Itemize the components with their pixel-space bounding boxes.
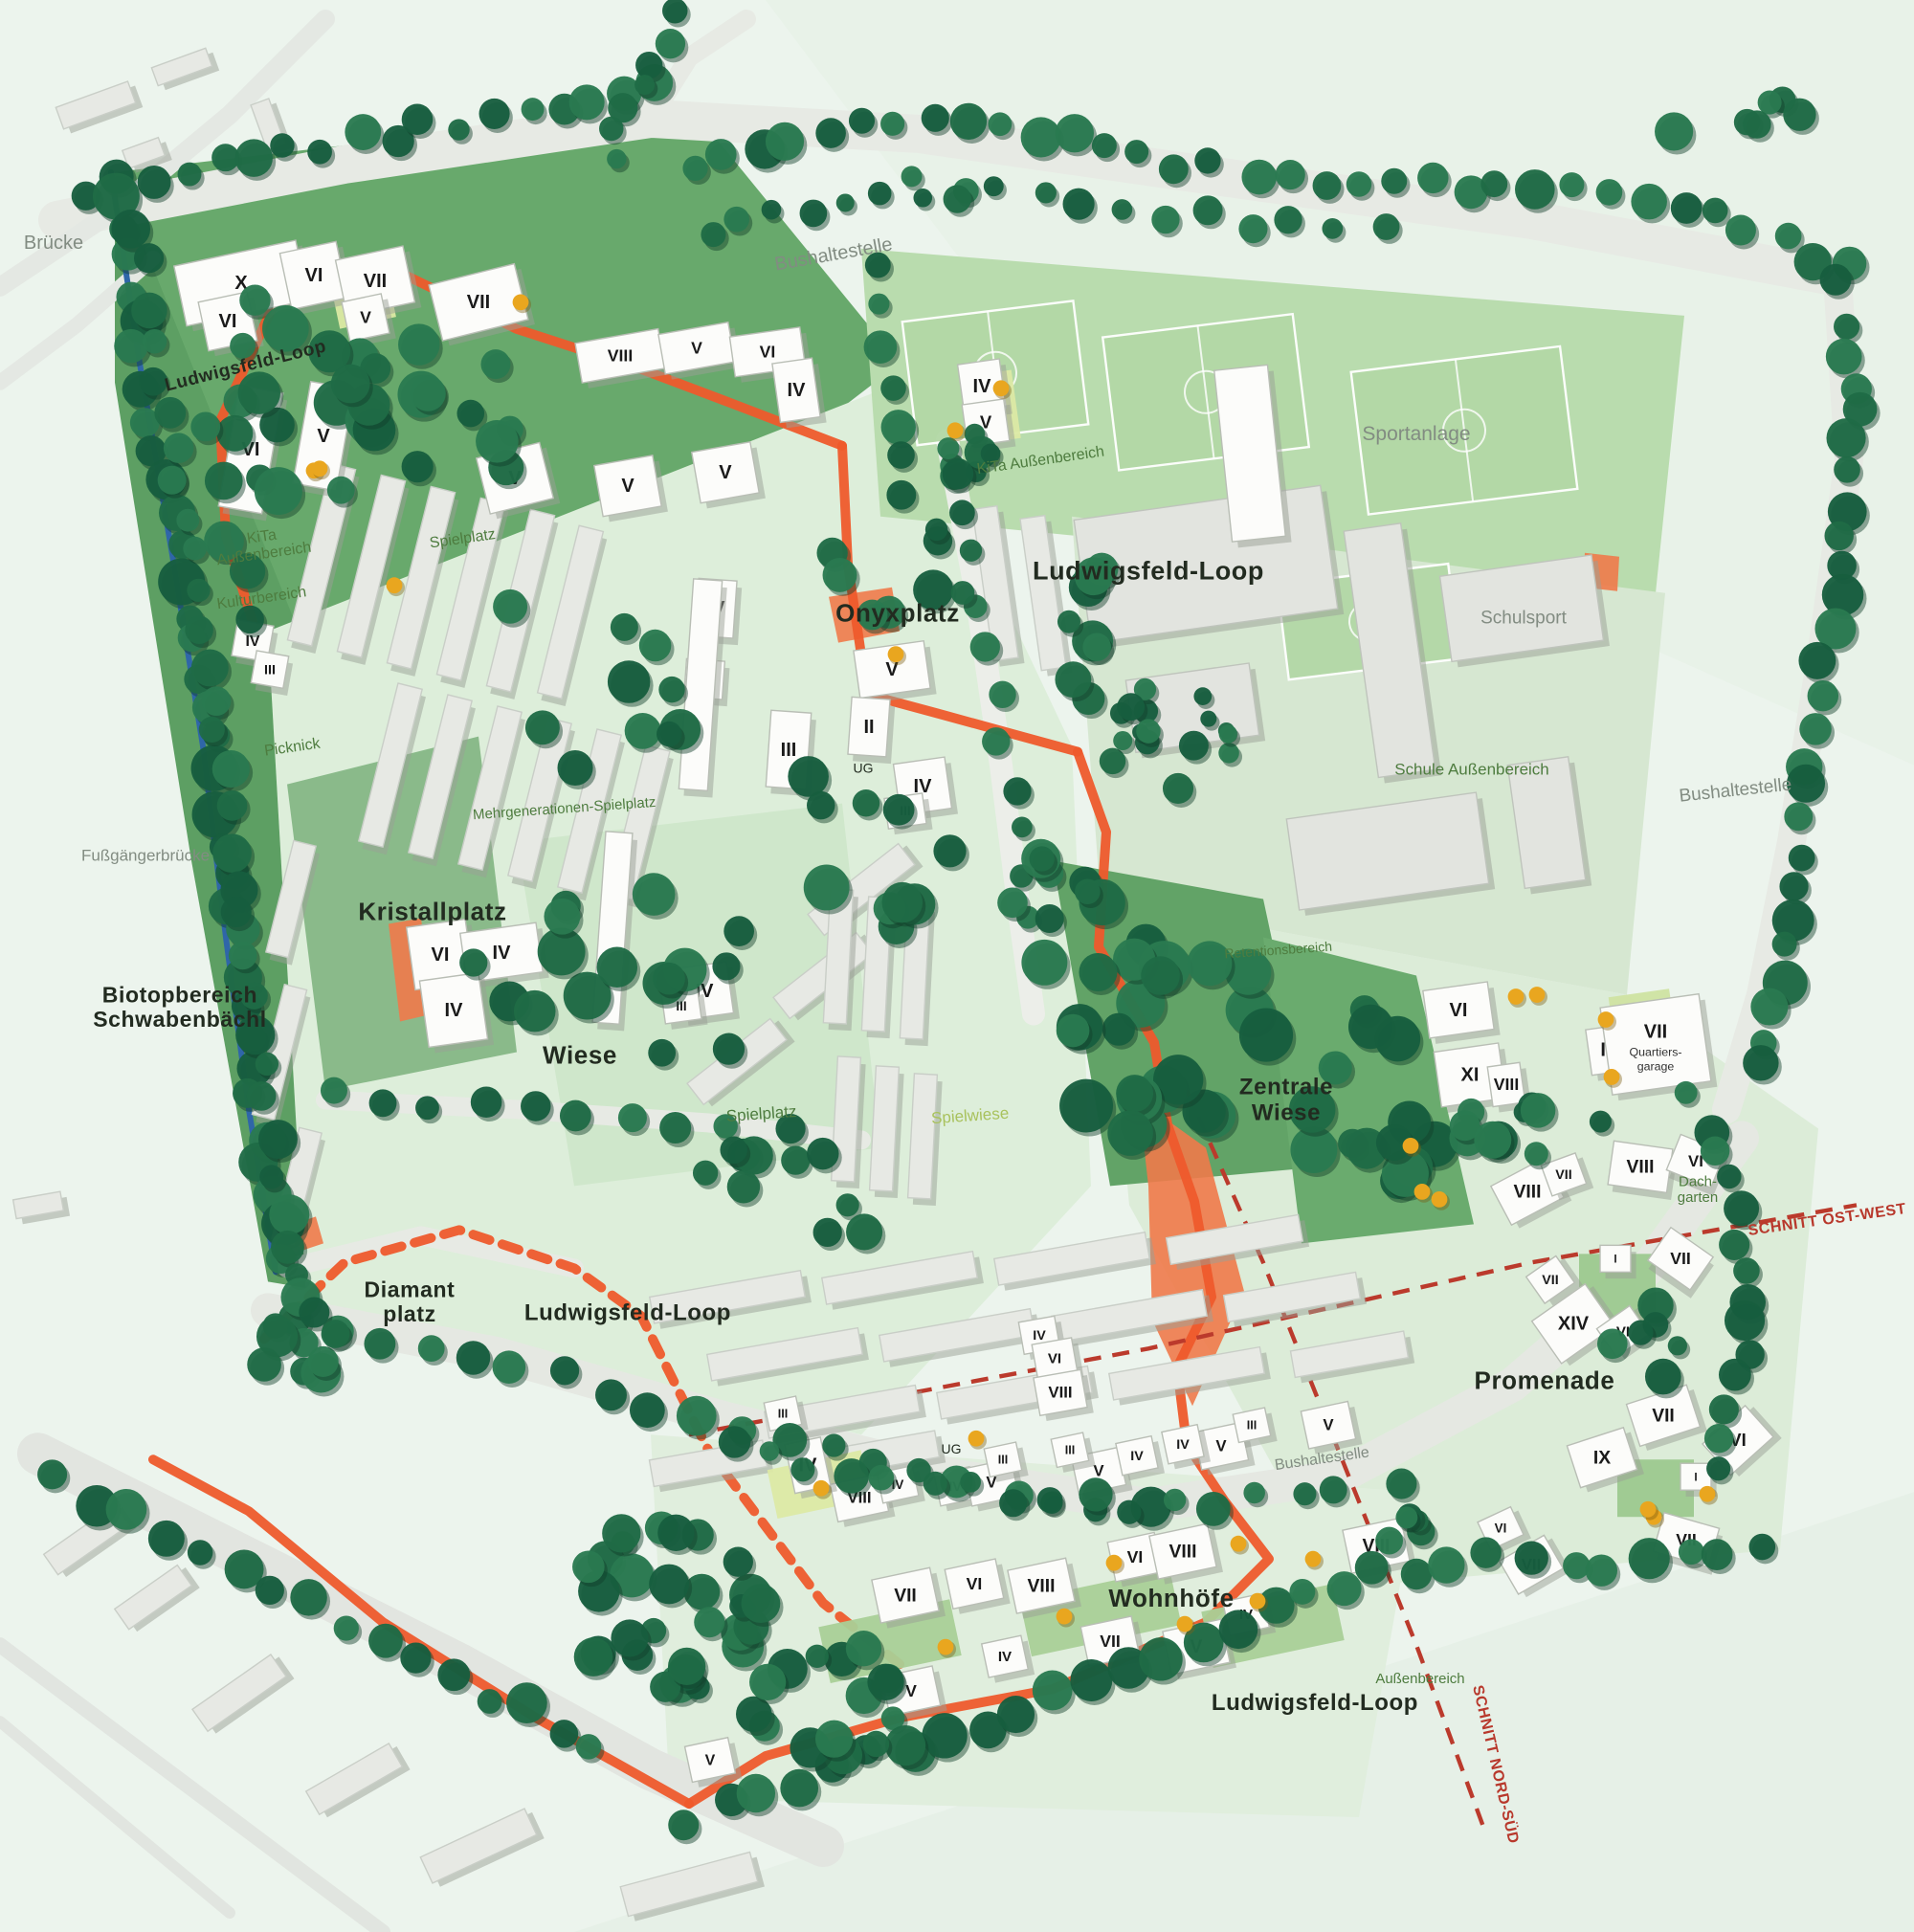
tree-icon — [749, 1664, 786, 1700]
tree-icon — [595, 1379, 627, 1410]
tree-icon — [212, 833, 252, 873]
tree-icon — [247, 1347, 281, 1382]
tree-icon — [1239, 1009, 1293, 1062]
tree-icon — [1194, 147, 1220, 173]
tree-icon — [766, 122, 804, 161]
tree-icon — [677, 1396, 717, 1436]
tree-icon — [321, 1077, 347, 1104]
tree-icon — [255, 467, 302, 515]
tree-icon — [823, 558, 857, 592]
tree-icon — [659, 1112, 691, 1144]
tree-icon — [999, 1489, 1027, 1517]
tree-icon — [514, 990, 556, 1033]
tree-icon — [1079, 953, 1117, 991]
tree-icon — [913, 189, 932, 208]
tree-icon — [131, 293, 167, 329]
tree-icon — [576, 1734, 601, 1759]
tree-icon — [1136, 719, 1161, 743]
yellow-tree-icon — [312, 460, 328, 477]
tree-icon — [368, 1624, 403, 1658]
building-floors-label: VIII — [1627, 1157, 1655, 1177]
tree-icon — [836, 1193, 859, 1216]
tree-icon — [1750, 988, 1788, 1026]
tree-icon — [493, 589, 527, 624]
building-floors-label: VIII — [1169, 1542, 1197, 1562]
building-floors-label: II — [863, 717, 874, 738]
tree-icon — [1159, 154, 1189, 184]
building-floors-label: IV — [973, 376, 992, 397]
map-canvas: XVIVIIVIIVIVVIVVVIIIVVIIVVVIVVVIIIVIIIIV… — [0, 0, 1914, 1932]
tree-icon — [984, 176, 1004, 196]
tree-icon — [415, 1096, 439, 1120]
tree-icon — [1401, 1559, 1433, 1590]
tree-icon — [1276, 160, 1305, 189]
tree-icon — [1092, 133, 1117, 158]
tree-icon — [1743, 1045, 1778, 1080]
tree-icon — [599, 117, 623, 141]
map-label: ZentraleWiese — [1239, 1074, 1333, 1125]
tree-icon — [448, 119, 469, 140]
tree-icon — [668, 1810, 699, 1840]
tree-icon — [846, 1213, 882, 1250]
tree-icon — [1758, 91, 1782, 115]
map-label: UG — [942, 1441, 962, 1456]
tree-icon — [1668, 1336, 1687, 1355]
tree-icon — [410, 375, 445, 411]
tree-icon — [574, 1637, 613, 1677]
tree-icon — [822, 1433, 845, 1456]
tree-icon — [1719, 1230, 1749, 1260]
tree-icon — [345, 114, 381, 150]
tree-icon — [1725, 1300, 1765, 1341]
tree-icon — [1179, 731, 1209, 761]
tree-icon — [1783, 99, 1815, 131]
tree-icon — [982, 727, 1010, 755]
tree-icon — [456, 1341, 490, 1374]
tree-icon — [781, 1145, 810, 1174]
tree-icon — [658, 677, 684, 702]
tree-icon — [1113, 731, 1132, 750]
map-label: Bushaltestelle — [1679, 775, 1793, 807]
tree-icon — [1163, 773, 1193, 804]
building-floors-label: IV — [1130, 1449, 1144, 1464]
tree-icon — [1704, 1424, 1733, 1453]
tree-icon — [887, 441, 915, 469]
building-floors-label: V — [691, 338, 702, 357]
tree-icon — [456, 400, 484, 428]
tree-icon — [1655, 112, 1693, 150]
tree-icon — [1035, 904, 1064, 933]
tree-icon — [723, 1547, 753, 1577]
tree-icon — [148, 1521, 185, 1557]
tree-icon — [111, 210, 150, 249]
yellow-tree-icon — [947, 422, 964, 438]
building-floors-label: XI — [1461, 1065, 1480, 1086]
tree-icon — [327, 477, 355, 504]
building-floors-label: VII — [364, 271, 387, 292]
tree-icon — [572, 1551, 605, 1584]
tree-icon — [1822, 574, 1863, 615]
tree-icon — [701, 222, 725, 247]
tree-icon — [1679, 1539, 1704, 1565]
tree-icon — [478, 1689, 502, 1714]
tree-icon — [290, 1579, 327, 1615]
tree-icon — [1525, 1142, 1548, 1166]
tree-icon — [459, 948, 487, 976]
building-floors-label: VII — [1542, 1273, 1558, 1288]
tree-icon — [1645, 1359, 1681, 1395]
tree-icon — [648, 1039, 676, 1067]
tree-icon — [694, 1607, 724, 1637]
tree-icon — [924, 1472, 947, 1496]
tree-icon — [813, 1218, 842, 1247]
tree-icon — [1706, 1456, 1730, 1480]
tree-icon — [364, 1328, 395, 1360]
yellow-tree-icon — [1057, 1609, 1073, 1625]
tree-icon — [997, 1696, 1035, 1733]
tree-icon — [271, 1231, 304, 1264]
building-floors-label: VI — [305, 265, 323, 286]
tree-icon — [933, 834, 966, 867]
building-floors-label: V — [360, 307, 371, 326]
building-floors-label: IX — [1593, 1448, 1611, 1468]
tree-icon — [1117, 693, 1145, 721]
tree-icon — [1733, 1257, 1760, 1284]
yellow-tree-icon — [1432, 1191, 1448, 1208]
tree-icon — [1241, 160, 1277, 195]
building-floors-label: V — [905, 1681, 917, 1700]
tree-icon — [569, 84, 605, 120]
tree-icon — [1070, 1659, 1112, 1701]
tree-icon — [1124, 140, 1148, 164]
tree-icon — [1313, 171, 1342, 200]
tree-icon — [134, 243, 164, 273]
yellow-tree-icon — [1414, 1184, 1431, 1200]
building-floors-label: IV — [788, 380, 807, 401]
tree-icon — [1590, 1111, 1612, 1133]
tree-icon — [1320, 1476, 1347, 1503]
tree-icon — [418, 1335, 445, 1362]
tree-icon — [1521, 1093, 1556, 1128]
tree-icon — [1417, 163, 1448, 193]
tree-icon — [1116, 1075, 1153, 1112]
tree-icon — [205, 462, 243, 500]
map-label: Brücke — [24, 233, 83, 254]
tree-icon — [849, 108, 875, 134]
tree-icon — [176, 509, 199, 532]
tree-icon — [1355, 1551, 1389, 1585]
tree-icon — [1141, 956, 1180, 995]
tree-icon — [560, 1100, 591, 1132]
map-label: Promenade — [1475, 1366, 1615, 1394]
tree-icon — [815, 118, 846, 148]
tree-icon — [880, 375, 906, 401]
map-label: Schule Außenbereich — [1394, 761, 1549, 779]
tree-icon — [1200, 711, 1216, 727]
yellow-tree-icon — [1604, 1069, 1620, 1085]
tree-icon — [950, 103, 987, 140]
map-label: Schulsport — [1480, 609, 1567, 629]
tree-icon — [880, 112, 904, 136]
yellow-tree-icon — [1305, 1551, 1322, 1567]
map-label: Ludwigsfeld-Loop — [1212, 1690, 1418, 1716]
yellow-tree-icon — [1403, 1138, 1419, 1154]
tree-icon — [1675, 1081, 1698, 1104]
tree-icon — [1035, 182, 1057, 203]
tree-icon — [864, 330, 898, 364]
yellow-tree-icon — [938, 1639, 954, 1655]
tree-icon — [922, 104, 949, 132]
tree-icon — [713, 1033, 745, 1065]
yellow-tree-icon — [1177, 1616, 1193, 1632]
tree-icon — [1193, 687, 1212, 705]
tree-icon — [1824, 522, 1853, 550]
tree-icon — [1040, 1492, 1062, 1514]
tree-icon — [682, 156, 707, 181]
tree-icon — [178, 163, 202, 187]
building-floors-label: VII — [1100, 1632, 1121, 1651]
tree-icon — [630, 1392, 665, 1428]
tree-icon — [212, 750, 250, 788]
building-floors-label: VIII — [1514, 1182, 1542, 1202]
tree-icon — [834, 1458, 869, 1494]
building-floors-label: III — [264, 662, 276, 677]
tree-icon — [1702, 1539, 1733, 1570]
yellow-tree-icon — [1700, 1486, 1716, 1502]
tree-icon — [656, 29, 685, 58]
tree-icon — [1787, 765, 1825, 803]
tree-icon — [635, 52, 662, 78]
tree-icon — [639, 630, 672, 661]
tree-icon — [400, 1642, 431, 1673]
tree-icon — [334, 1615, 359, 1640]
tree-icon — [1596, 179, 1623, 206]
tree-icon — [1631, 184, 1667, 220]
building-sub-label: garage — [1637, 1060, 1675, 1074]
tree-icon — [1196, 1492, 1231, 1526]
tree-icon — [723, 207, 749, 233]
tree-icon — [867, 1664, 903, 1700]
tree-icon — [611, 613, 638, 641]
tree-icon — [269, 1194, 309, 1234]
building-floors-label: VI — [432, 944, 450, 966]
tree-icon — [780, 1769, 818, 1808]
tree-icon — [1725, 214, 1756, 245]
tree-icon — [1515, 1541, 1548, 1574]
tree-icon — [657, 722, 681, 746]
building-floors-label: VIII — [1494, 1075, 1519, 1094]
tree-icon — [712, 952, 740, 980]
tree-icon — [256, 1053, 278, 1076]
tree-icon — [1219, 1610, 1258, 1649]
tree-icon — [788, 756, 829, 797]
tree-icon — [836, 193, 855, 211]
building-floors-label: V — [1323, 1416, 1334, 1434]
tree-icon — [1003, 777, 1031, 805]
tree-icon — [1480, 170, 1507, 197]
tree-icon — [863, 1731, 889, 1757]
tree-icon — [723, 916, 754, 946]
building-floors-label: VII — [1644, 1022, 1667, 1043]
tree-icon — [1059, 1079, 1113, 1133]
tree-icon — [922, 1713, 967, 1758]
tree-icon — [1826, 339, 1862, 375]
map-label: Dach-garten — [1678, 1173, 1719, 1206]
map-label: Fußgängerbrücke — [81, 847, 210, 865]
yellow-tree-icon — [1250, 1593, 1266, 1610]
tree-icon — [1709, 1394, 1739, 1424]
tree-icon — [611, 1619, 648, 1656]
building-floors-label: III — [1065, 1444, 1075, 1457]
tree-icon — [1834, 314, 1859, 340]
tree-icon — [1749, 1534, 1776, 1561]
yellow-tree-icon — [513, 294, 529, 310]
tree-icon — [1057, 1014, 1090, 1048]
tree-icon — [949, 500, 975, 525]
building-floors-label: VI — [1450, 1000, 1468, 1021]
tree-icon — [199, 717, 225, 743]
tree-icon — [1117, 1500, 1141, 1524]
tree-icon — [1322, 218, 1343, 239]
building-floors-label: VI — [1048, 1350, 1061, 1366]
tree-icon — [1671, 192, 1703, 224]
tree-icon — [217, 790, 248, 821]
tree-icon — [506, 1682, 547, 1723]
tree-icon — [943, 458, 973, 489]
tree-icon — [1559, 172, 1584, 197]
tree-icon — [997, 887, 1028, 918]
tree-icon — [185, 616, 213, 645]
tree-icon — [1775, 223, 1802, 250]
tree-icon — [1381, 168, 1407, 194]
building-floors-label: I — [1694, 1471, 1697, 1483]
tree-icon — [525, 710, 560, 744]
map-label: Ludwigsfeld-Loop — [1033, 557, 1264, 586]
tree-icon — [258, 1120, 298, 1159]
tree-icon — [247, 1081, 277, 1111]
building-floors-label: VII — [1652, 1406, 1675, 1426]
tree-icon — [737, 1774, 775, 1812]
tree-icon — [1057, 611, 1080, 633]
tree-icon — [1820, 264, 1852, 296]
tree-icon — [668, 1648, 705, 1685]
tree-icon — [37, 1459, 67, 1489]
building-floors-label: VI — [967, 1574, 983, 1593]
tree-icon — [727, 1170, 760, 1203]
tree-icon — [1056, 114, 1094, 152]
tree-icon — [544, 899, 580, 935]
map-label: BiotopbereichSchwabenbächl — [93, 982, 267, 1032]
map-label: Wiese — [543, 1040, 617, 1069]
tree-icon — [741, 1584, 780, 1623]
tree-icon — [1772, 932, 1797, 957]
tree-icon — [607, 149, 626, 168]
building-floors-label: VI — [760, 342, 776, 361]
tree-icon — [618, 1103, 647, 1132]
tree-icon — [138, 166, 171, 199]
tree-icon — [1789, 845, 1815, 872]
tree-icon — [807, 1138, 838, 1169]
tree-icon — [369, 1089, 397, 1117]
building-floors-label: VII — [894, 1586, 917, 1606]
tree-icon — [970, 632, 1000, 661]
building-floors-label: V — [1215, 1437, 1227, 1455]
building-floors-label: V — [621, 476, 634, 497]
tree-icon — [804, 865, 850, 911]
building-floors-label: III — [778, 1408, 788, 1421]
tree-icon — [806, 1645, 829, 1668]
tree-icon — [106, 1489, 147, 1530]
tree-icon — [229, 942, 257, 970]
tree-icon — [234, 139, 272, 176]
building-floors-label: III — [1247, 1419, 1257, 1432]
tree-icon — [550, 1356, 579, 1385]
tree-icon — [869, 1465, 895, 1491]
building-floors-label: IV — [1033, 1328, 1046, 1344]
tree-icon — [649, 1565, 689, 1605]
tree-icon — [1112, 199, 1133, 220]
tree-icon — [1033, 1671, 1073, 1711]
tree-icon — [307, 140, 332, 165]
tree-icon — [1021, 117, 1061, 157]
yellow-tree-icon — [1231, 1536, 1247, 1552]
tree-icon — [1826, 418, 1865, 457]
tree-icon — [1701, 1137, 1729, 1166]
tree-icon — [693, 1161, 718, 1186]
building-floors-label: VIII — [1048, 1384, 1072, 1402]
tree-icon — [886, 480, 916, 510]
yellow-tree-icon — [1508, 988, 1525, 1005]
map-label: Onyxplatz — [835, 599, 960, 628]
building-floors-label: IV — [445, 1000, 464, 1021]
tree-icon — [625, 713, 661, 749]
tree-icon — [602, 1514, 640, 1552]
tree-icon — [187, 579, 210, 602]
building-floors-label: III — [781, 740, 797, 761]
tree-icon — [1597, 1328, 1628, 1359]
tree-icon — [1395, 1506, 1417, 1528]
tree-icon — [815, 1721, 853, 1758]
tree-icon — [1743, 110, 1770, 138]
tree-icon — [1515, 169, 1555, 210]
map-label: Ludwigsfeld-Loop — [524, 1299, 731, 1325]
tree-icon — [1798, 642, 1836, 679]
tree-icon — [188, 1540, 212, 1565]
tree-icon — [960, 540, 982, 562]
tree-icon — [1164, 1489, 1186, 1511]
yellow-tree-icon — [813, 1480, 830, 1497]
tree-icon — [1238, 214, 1267, 243]
tree-icon — [322, 1320, 350, 1348]
tree-icon — [154, 397, 186, 429]
map-label: Kristallplatz — [358, 898, 506, 926]
tree-icon — [881, 410, 916, 444]
tree-icon — [1021, 940, 1067, 986]
tree-icon — [493, 1350, 526, 1384]
tree-icon — [437, 1658, 470, 1691]
tree-icon — [331, 365, 370, 404]
tree-icon — [202, 686, 232, 716]
tree-icon — [1327, 1571, 1362, 1606]
tree-icon — [989, 681, 1015, 708]
tree-icon — [868, 294, 889, 315]
tree-icon — [1719, 1359, 1751, 1391]
tree-icon — [256, 1576, 284, 1605]
tree-icon — [1079, 1477, 1112, 1511]
tree-icon — [807, 791, 835, 819]
yellow-tree-icon — [888, 646, 904, 662]
tree-icon — [1293, 1482, 1316, 1505]
